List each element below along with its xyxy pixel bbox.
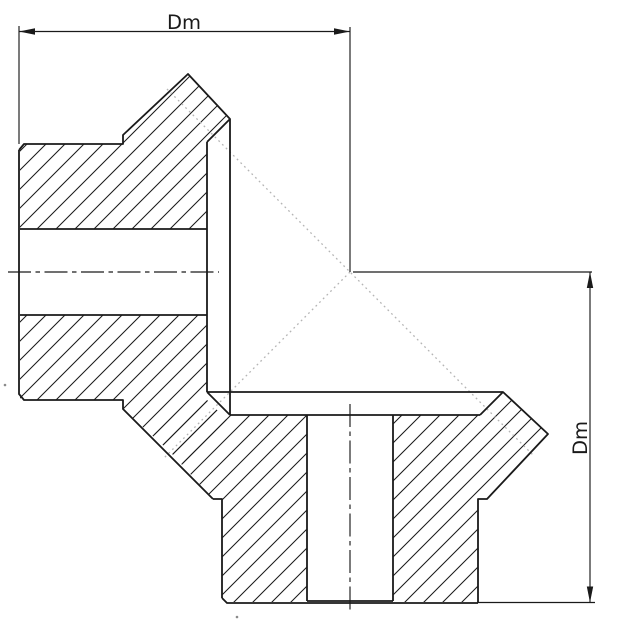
right-dimension-label: Dm [569,421,592,455]
top-dimension-label: Dm [167,11,201,34]
stray-dot [236,616,239,619]
drawing-svg: Dm Dm [0,0,640,639]
stray-dot [4,384,7,387]
gear-section-drawing: Dm Dm [0,0,640,639]
